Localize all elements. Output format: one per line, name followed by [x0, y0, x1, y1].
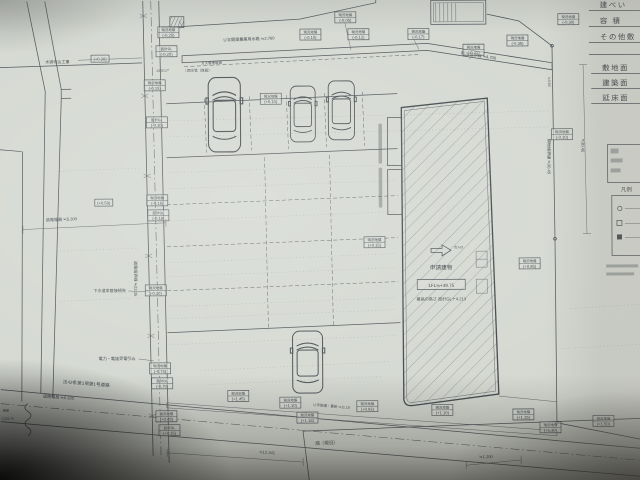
west-parcel-lines: [0, 1, 144, 402]
spot-elevation-label: 現況地盤(-0.10): [300, 29, 321, 40]
svg-text:(-0.12): (-0.12): [352, 35, 365, 40]
legend: 凡例: [606, 144, 640, 275]
svg-text:(+0.93): (+0.93): [361, 407, 375, 412]
svg-text:現況地盤: 現況地盤: [161, 27, 176, 32]
site-plan-drawing: 道路幅員 ≒5.300 Ｕ字開渠農業用水路 ≒2.760 隣地境界線 ≒4.70…: [0, 0, 640, 480]
svg-text:現況地盤: 現況地盤: [367, 237, 382, 242]
building-max-height: 最高の高さ 設計GL＋4.213: [416, 295, 466, 301]
rain-pipe-label: □雨水管（既設）: [185, 68, 212, 73]
svg-text:(-0.75): (-0.75): [154, 369, 167, 374]
spot-elevation-label: 現況地盤(+1.50): [593, 415, 614, 426]
svg-text:(+1.15): (+1.15): [517, 415, 531, 420]
spot-single-b: (+0.50): [97, 200, 111, 205]
margin-row-label: 容 積: [600, 16, 622, 25]
svg-text:(-0.35): (-0.35): [511, 41, 524, 46]
spot-labels: 現況地盤(-0.05) 現況地盤(-0.10) 現況地盤(-0.12) 現況地盤…: [144, 10, 614, 435]
svg-text:(-0.21): (-0.21): [467, 50, 480, 55]
spot-elevation-label: 現況地盤(-0.20): [145, 285, 166, 296]
svg-text:(+1.10): (+1.10): [284, 403, 298, 408]
svg-text:(+0.15): (+0.15): [163, 431, 177, 436]
svg-text:(-0.10): (-0.10): [304, 35, 317, 40]
svg-text:現況地盤: 現況地盤: [596, 416, 611, 421]
svg-text:現況地盤: 現況地盤: [283, 398, 298, 403]
spot-elevation-label: 現況地盤(+0.45): [156, 411, 177, 422]
svg-text:現況地盤: 現況地盤: [466, 45, 481, 50]
svg-text:現況地盤: 現況地盤: [231, 391, 246, 396]
svg-text:現況地盤: 現況地盤: [360, 401, 375, 406]
spot-elevation-label: 設計GL(-0.70): [152, 378, 173, 389]
car-icon: [288, 86, 317, 142]
svg-text:現況地盤: 現況地盤: [351, 29, 366, 34]
svg-text:現況地盤: 現況地盤: [300, 412, 315, 417]
west-boundary-label: 道路境界線 ≒23.35: [133, 261, 139, 297]
east-boundary-top-dim: ≒4.50: [547, 77, 551, 87]
side-road-width-label: 道路幅員 ≒5.300: [46, 215, 78, 222]
bottom-dim-left: ≒12.341: [259, 449, 276, 455]
spot-elevation-label: 現況地盤(-0.10): [551, 129, 572, 140]
margin-row-label: その他敷: [600, 32, 636, 41]
car-icon: [290, 331, 325, 393]
site-plan-photo: 道路幅員 ≒5.300 Ｕ字開渠農業用水路 ≒2.760 隣地境界線 ≒4.70…: [0, 0, 640, 480]
svg-text:(-0.18): (-0.18): [152, 216, 165, 221]
svg-text:設計GL: 設計GL: [156, 378, 168, 383]
svg-text:現況地盤: 現況地盤: [148, 80, 163, 85]
car-icon: [326, 81, 356, 140]
parking-lines: [166, 92, 400, 333]
svg-text:現況地盤: 現況地盤: [543, 422, 558, 427]
svg-text:(-0.10): (-0.10): [151, 123, 164, 128]
vertical-note-blur: [378, 124, 382, 164]
spot-elevation-label: 現況地盤(-0.12): [348, 29, 369, 40]
svg-text:現況地盤: 現況地盤: [435, 405, 450, 410]
front-road-name: 法42条第1項第1号道路: [63, 378, 111, 388]
front-road-width: 道路幅員 ≒6.320: [43, 392, 75, 400]
neighbor-structure: [431, 0, 486, 24]
svg-text:現況地盤: 現況地盤: [411, 29, 426, 34]
spot-elevation-label: 現況地盤(-0.30): [558, 14, 579, 25]
svg-text:(+0.85): (+0.85): [523, 264, 537, 269]
power-label: 電力・電話受電引込: [99, 355, 136, 361]
application-building: 出入口 申請建物 1FL≒+49.75 最高の高さ 設計GL＋4.213: [378, 98, 557, 406]
spot-elevation-label: 現況地盤(-0.25): [158, 27, 179, 38]
svg-text:現況地盤: 現況地盤: [555, 129, 570, 134]
water-channel-label: Ｕ字開渠農業用水路 ≒2.760: [223, 34, 276, 42]
spot-elevation-label: 設計GL(-0.20): [156, 46, 177, 57]
svg-text:現況地盤: 現況地盤: [561, 14, 576, 19]
building-name: 申請建物: [430, 263, 453, 271]
svg-text:設計GL: 設計GL: [161, 46, 173, 51]
side-road-width-dim: 道路幅員 ≒5.300: [23, 215, 166, 234]
margin-row-label: 建ぺい: [600, 0, 627, 9]
svg-text:現況地盤: 現況地盤: [149, 285, 164, 290]
legend-square-symbol: [617, 220, 622, 225]
margin-table: 建ぺい 容 積 その他敷 敷地面 建築面 延床面: [589, 0, 640, 103]
car-icon: [206, 77, 243, 152]
arrow-note: 出入口: [454, 244, 463, 249]
svg-text:(-0.15): (-0.15): [149, 86, 162, 91]
svg-text:(+0.45): (+0.45): [160, 417, 174, 422]
svg-text:(-0.30): (-0.30): [562, 20, 575, 25]
spot-elevation-label: 現況地盤(+1.18): [297, 412, 318, 423]
svg-text:(-0.05): (-0.05): [339, 18, 352, 23]
svg-text:(+1.30): (+1.30): [544, 428, 558, 433]
water-service-label: 水道引込工事: [45, 58, 70, 64]
bottom-dim-right: ≒1.200: [479, 454, 493, 459]
svg-text:(+1.50): (+1.50): [597, 421, 611, 426]
spot-elevation-label: 現況地盤(+1.15): [513, 409, 534, 420]
spot-elevation-label: 現況地盤(+1.10): [432, 404, 453, 415]
svg-text:(-0.25): (-0.25): [162, 33, 175, 38]
spot-elevation-label: 現況地盤(-0.15): [147, 195, 168, 206]
vertical-note-blur: [379, 168, 383, 208]
spot-elevation-label: 設計GL(-0.10): [146, 117, 167, 128]
spot-elevation-label: 設計GL(+0.15): [159, 425, 180, 436]
spot-elevation-label: 現況地盤(+1.45): [228, 390, 249, 401]
svg-text:(-0.20): (-0.20): [150, 291, 163, 296]
spot-elevation-label: 現況地盤(-0.35): [507, 35, 528, 46]
svg-text:現況地盤: 現況地盤: [150, 195, 165, 200]
svg-text:現況地盤: 現況地盤: [153, 363, 168, 368]
wall-level: ▽101.70: [2, 417, 14, 421]
retaining-wall-icon: [25, 404, 31, 436]
wall-label: 擁壁: [3, 408, 9, 413]
svg-text:現況地盤: 現況地盤: [338, 12, 353, 17]
spot-elevation-label: 現況地盤(-0.21): [463, 44, 484, 55]
svg-text:現況地盤: 現況地盤: [159, 411, 174, 416]
svg-text:現況地盤: 現況地盤: [523, 258, 538, 263]
field-parcel: 畑（現況）: [303, 418, 640, 480]
svg-text:現況地盤: 現況地盤: [510, 35, 525, 40]
svg-text:(-0.15): (-0.15): [151, 201, 164, 206]
spot-elevation-label: 現況地盤(+1.30): [540, 422, 561, 433]
spot-elevation-label: 現況地盤(+1.10): [280, 397, 301, 408]
svg-text:(-0.70): (-0.70): [156, 384, 169, 389]
sewer-label: 下水道本管接続先: [93, 287, 126, 293]
svg-text:(+0.15): (+0.15): [368, 243, 382, 248]
spot-elevation-label: 現況地盤(-0.75): [150, 363, 171, 374]
angle-label: 13°0′17″: [156, 69, 170, 73]
svg-text:(+1.10): (+1.10): [436, 410, 450, 415]
spot-elevation-label: 現況地盤(+0.15): [364, 237, 385, 248]
field-label: 畑（現況）: [315, 439, 338, 447]
legend-title: 凡例: [621, 185, 633, 193]
svg-text:現況地盤: 現況地盤: [264, 94, 279, 99]
spot-elevation-label: 現況地盤(-0.05): [335, 12, 356, 23]
legend-filled-square-symbol: [617, 234, 622, 239]
svg-text:設計GL: 設計GL: [151, 117, 163, 122]
svg-text:(-0.17): (-0.17): [412, 34, 425, 39]
margin-row-label: 延床面: [602, 93, 629, 102]
building-floor-level: 1FL≒+49.75: [428, 283, 454, 288]
svg-text:現況地盤: 現況地盤: [303, 29, 318, 34]
spot-elevation-label: 設計GL(-0.18): [148, 210, 169, 221]
svg-text:(+0.10): (+0.10): [264, 99, 278, 104]
gas-pipe-label: ガス管埋設管: [201, 60, 223, 66]
east-boundary-label: 隣地境界線 ≒30.45: [546, 139, 552, 175]
svg-text:(+1.45): (+1.45): [232, 396, 246, 401]
spot-single-a: (+0.30): [93, 57, 107, 62]
gutter-label: Ｕ字側溝・蓋掛 ≒11.18: [313, 402, 350, 410]
svg-text:設計GL: 設計GL: [153, 210, 165, 215]
spot-elevation-label: 現況地盤(+0.93): [357, 401, 378, 412]
svg-text:現況地盤: 現況地盤: [516, 409, 531, 414]
svg-text:設計GL: 設計GL: [164, 425, 176, 430]
margin-row-label: 建築面: [602, 78, 629, 87]
spot-elevation-label: 現況地盤(-0.15): [144, 80, 165, 91]
svg-text:(-0.20): (-0.20): [160, 52, 173, 57]
svg-text:(-0.10): (-0.10): [556, 135, 569, 140]
spot-elevation-label: 現況地盤(+0.85): [519, 258, 540, 269]
spot-elevation-label: 現況地盤(-0.17): [408, 28, 429, 39]
parked-cars: [206, 77, 358, 394]
svg-text:(+1.18): (+1.18): [301, 418, 315, 423]
legend-circle-symbol: [618, 206, 622, 210]
east-dim-label: ≒30.45: [580, 139, 585, 153]
margin-row-label: 敷地面: [602, 63, 629, 72]
spot-elevation-label: 現況地盤(+0.10): [260, 93, 281, 104]
